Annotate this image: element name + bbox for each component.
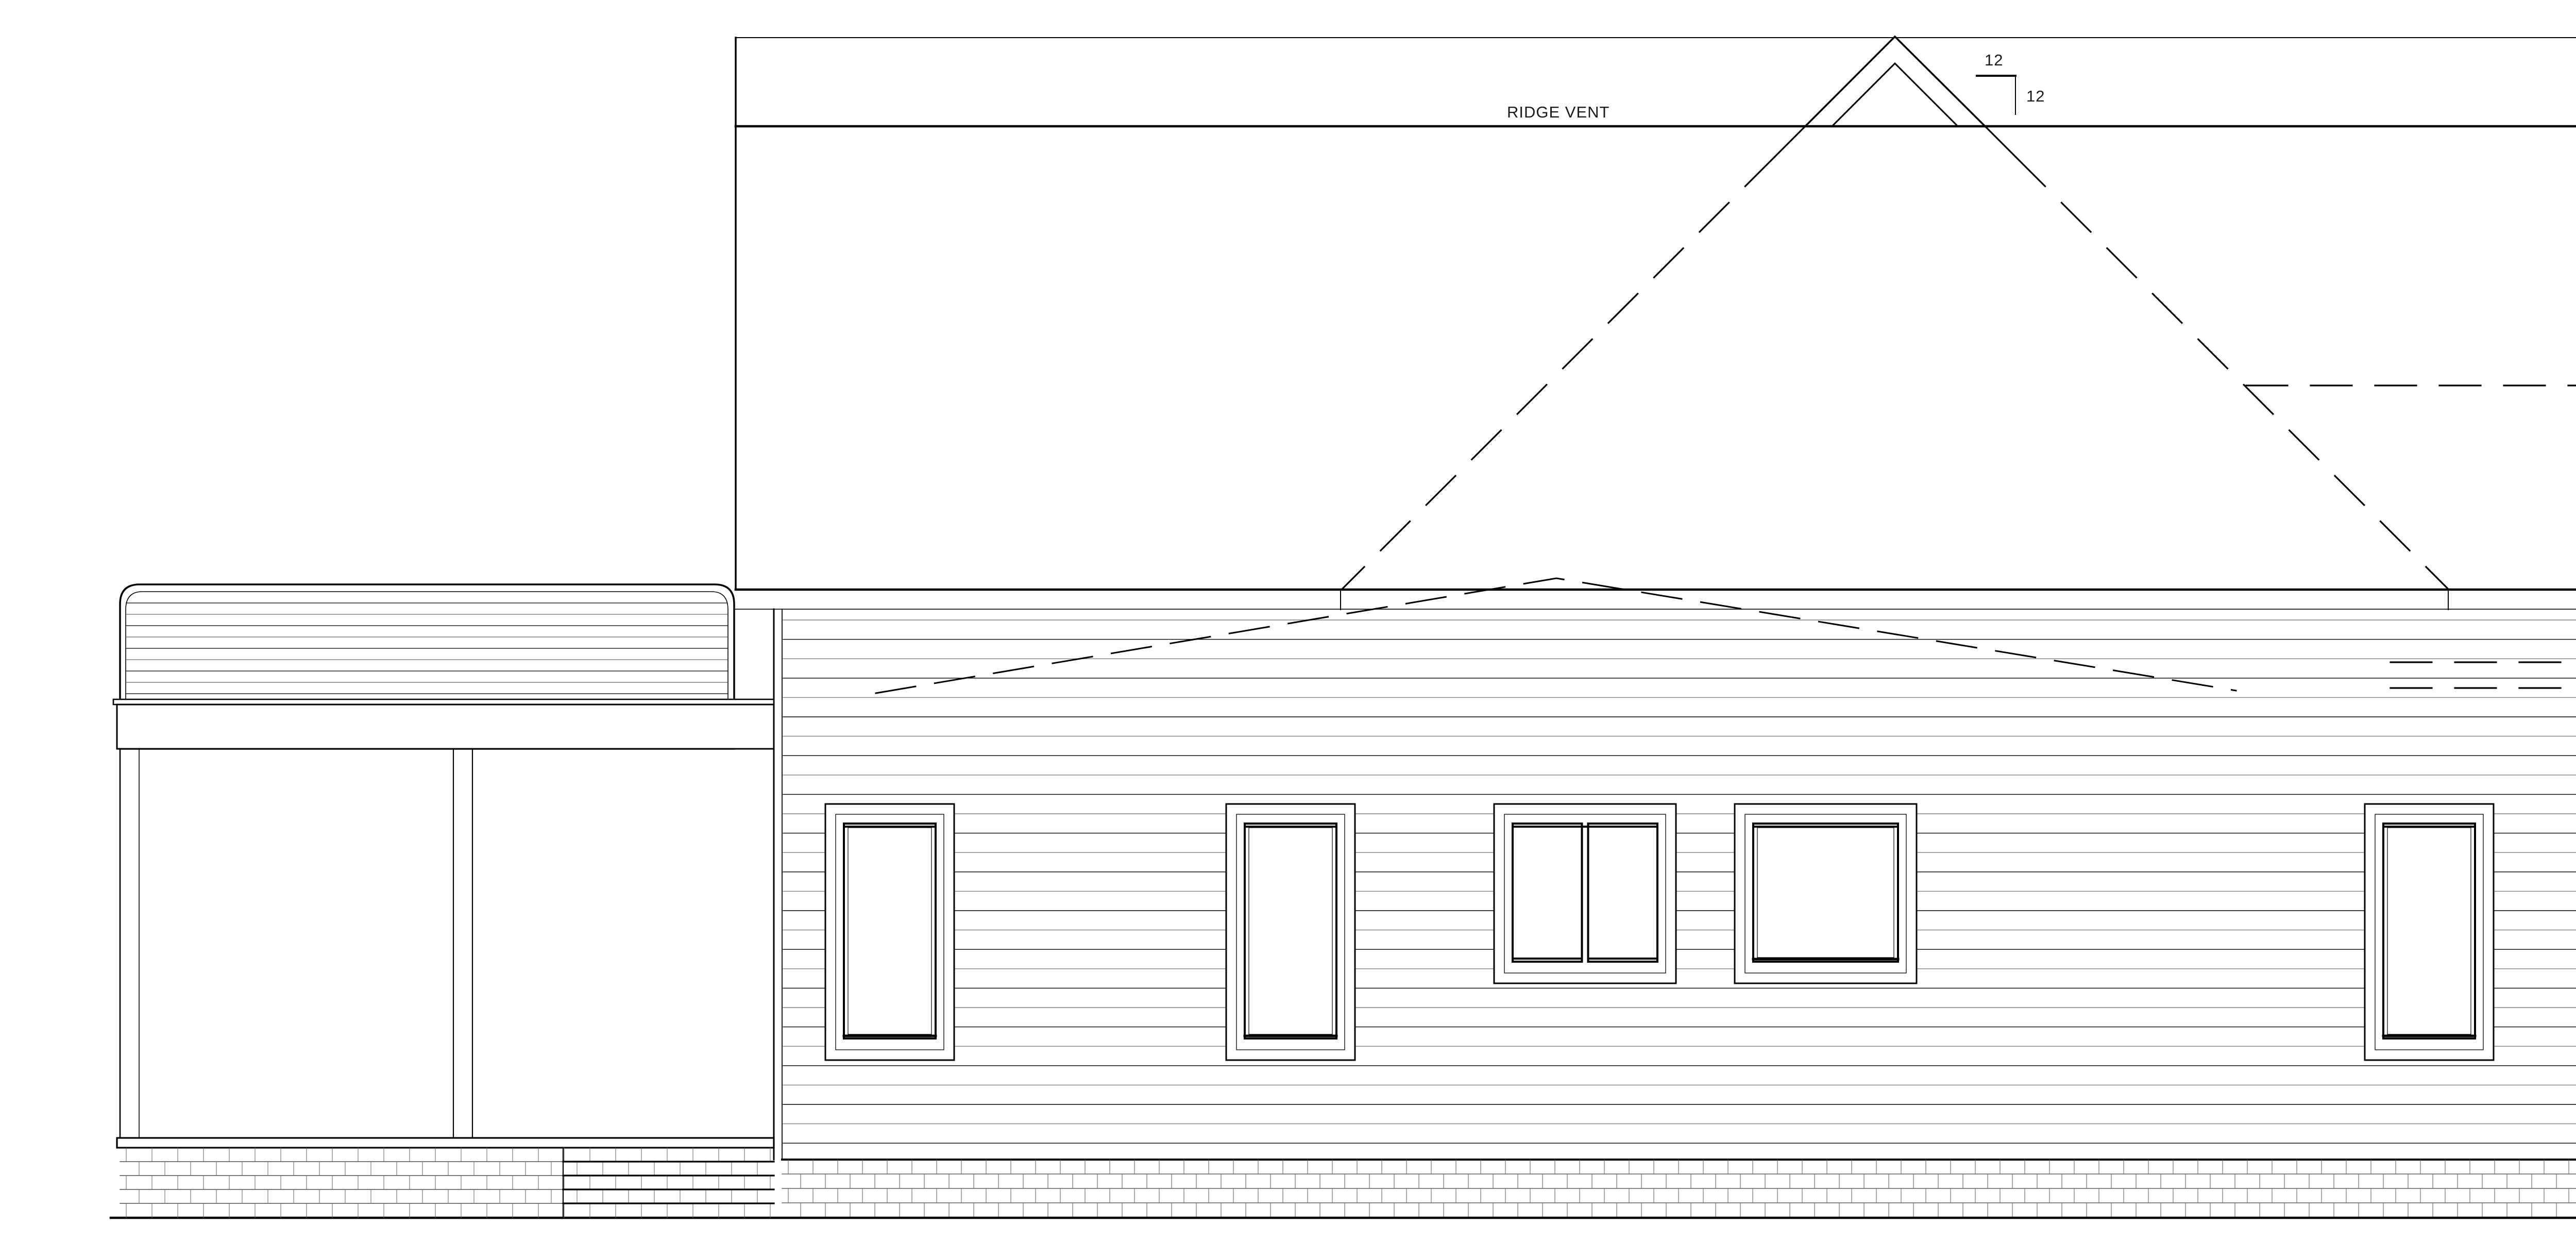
hidden-gable-right-leg xyxy=(2016,157,2448,589)
hidden-gable-left-leg xyxy=(1342,157,1774,589)
window-double xyxy=(1494,804,1676,983)
window-picture xyxy=(1735,804,1917,983)
gable-peak-outer xyxy=(1805,37,1985,126)
hidden-gable-right-solid xyxy=(1985,126,2016,157)
window-double-trim xyxy=(1494,804,1676,983)
pitch-rise-label: 12 xyxy=(2026,87,2045,105)
ridge-vent-label: RIDGE VENT xyxy=(1507,103,1609,121)
window-tall-3 xyxy=(2365,804,2494,1060)
window-tall-2 xyxy=(1226,804,1355,1060)
window-picture-trim xyxy=(1735,804,1917,983)
pitch-symbol xyxy=(1977,76,2015,114)
porch-brick-base xyxy=(120,1148,774,1218)
hidden-roof-lines xyxy=(876,126,2576,1160)
clapboard-siding xyxy=(783,620,2576,1143)
elevation-drawing: 12 12 RIDGE VENT xyxy=(0,0,2576,1258)
pitch-run-label: 12 xyxy=(1985,51,2003,69)
porch-deck-band xyxy=(117,1138,774,1148)
gable-peak xyxy=(1805,37,1985,126)
windows xyxy=(825,804,2576,1060)
window-tall-1 xyxy=(825,804,954,1060)
porch-steps xyxy=(563,1148,774,1218)
gable-peak-inner xyxy=(1832,63,1958,126)
elevation-sheet: 12 12 RIDGE VENT xyxy=(0,0,2576,1258)
hidden-vault-line xyxy=(876,578,2236,693)
porch-header-band xyxy=(117,705,774,749)
screened-porch xyxy=(113,584,774,1218)
eave-fascia xyxy=(736,590,2576,609)
foundation-blocks xyxy=(782,1160,2576,1218)
roof-outline xyxy=(736,38,2576,609)
hidden-gable-left-solid xyxy=(1774,126,1805,157)
